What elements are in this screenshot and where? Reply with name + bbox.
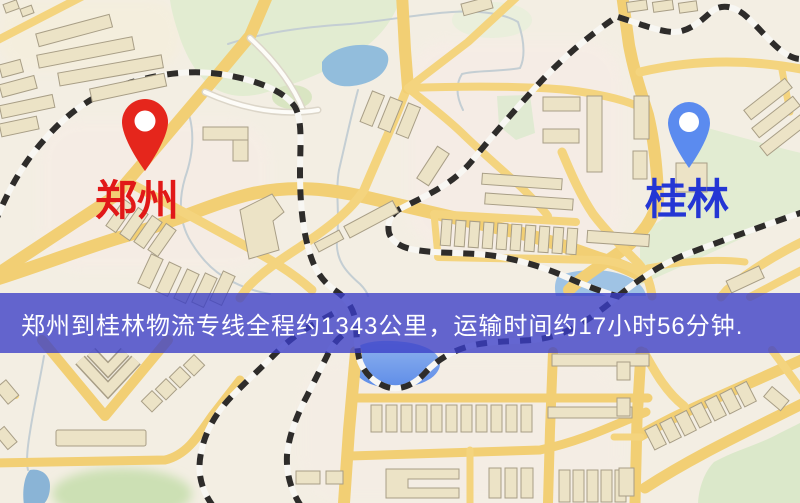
route-info-banner: 郑州到桂林物流专线全程约1343公里，运输时间约17小时56分钟.	[0, 293, 800, 353]
map-view: 郑州 桂林 郑州到桂林物流专线全程约1343公里，运输时间约17小时56分钟.	[0, 0, 800, 503]
route-info-text: 郑州到桂林物流专线全程约1343公里，运输时间约17小时56分钟.	[21, 306, 743, 341]
origin-label: 郑州	[95, 178, 179, 225]
destination-pin-dot	[679, 112, 699, 132]
origin-pin-dot	[135, 111, 156, 132]
destination-label: 桂林	[645, 177, 729, 224]
pond-bottom-left	[23, 470, 50, 503]
map-canvas: 郑州 桂林	[0, 0, 800, 503]
railway-top-right	[618, 7, 800, 59]
